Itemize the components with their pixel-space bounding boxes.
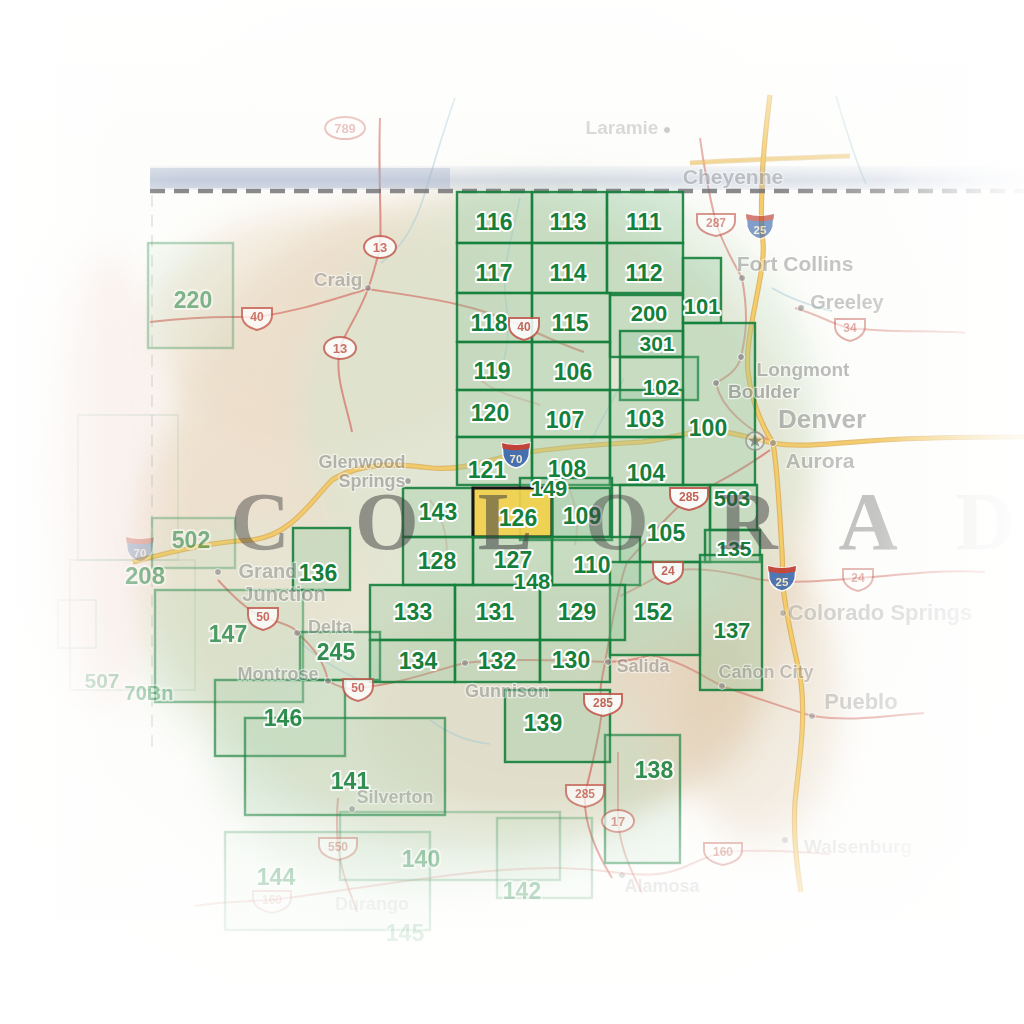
- map-canvas: 1161131111171141121181152003011011021191…: [0, 0, 1024, 1024]
- colorado-map-index-svg: 1161131111171141121181152003011011021191…: [0, 0, 1024, 1024]
- edge-fade-overlay: [0, 0, 1024, 1024]
